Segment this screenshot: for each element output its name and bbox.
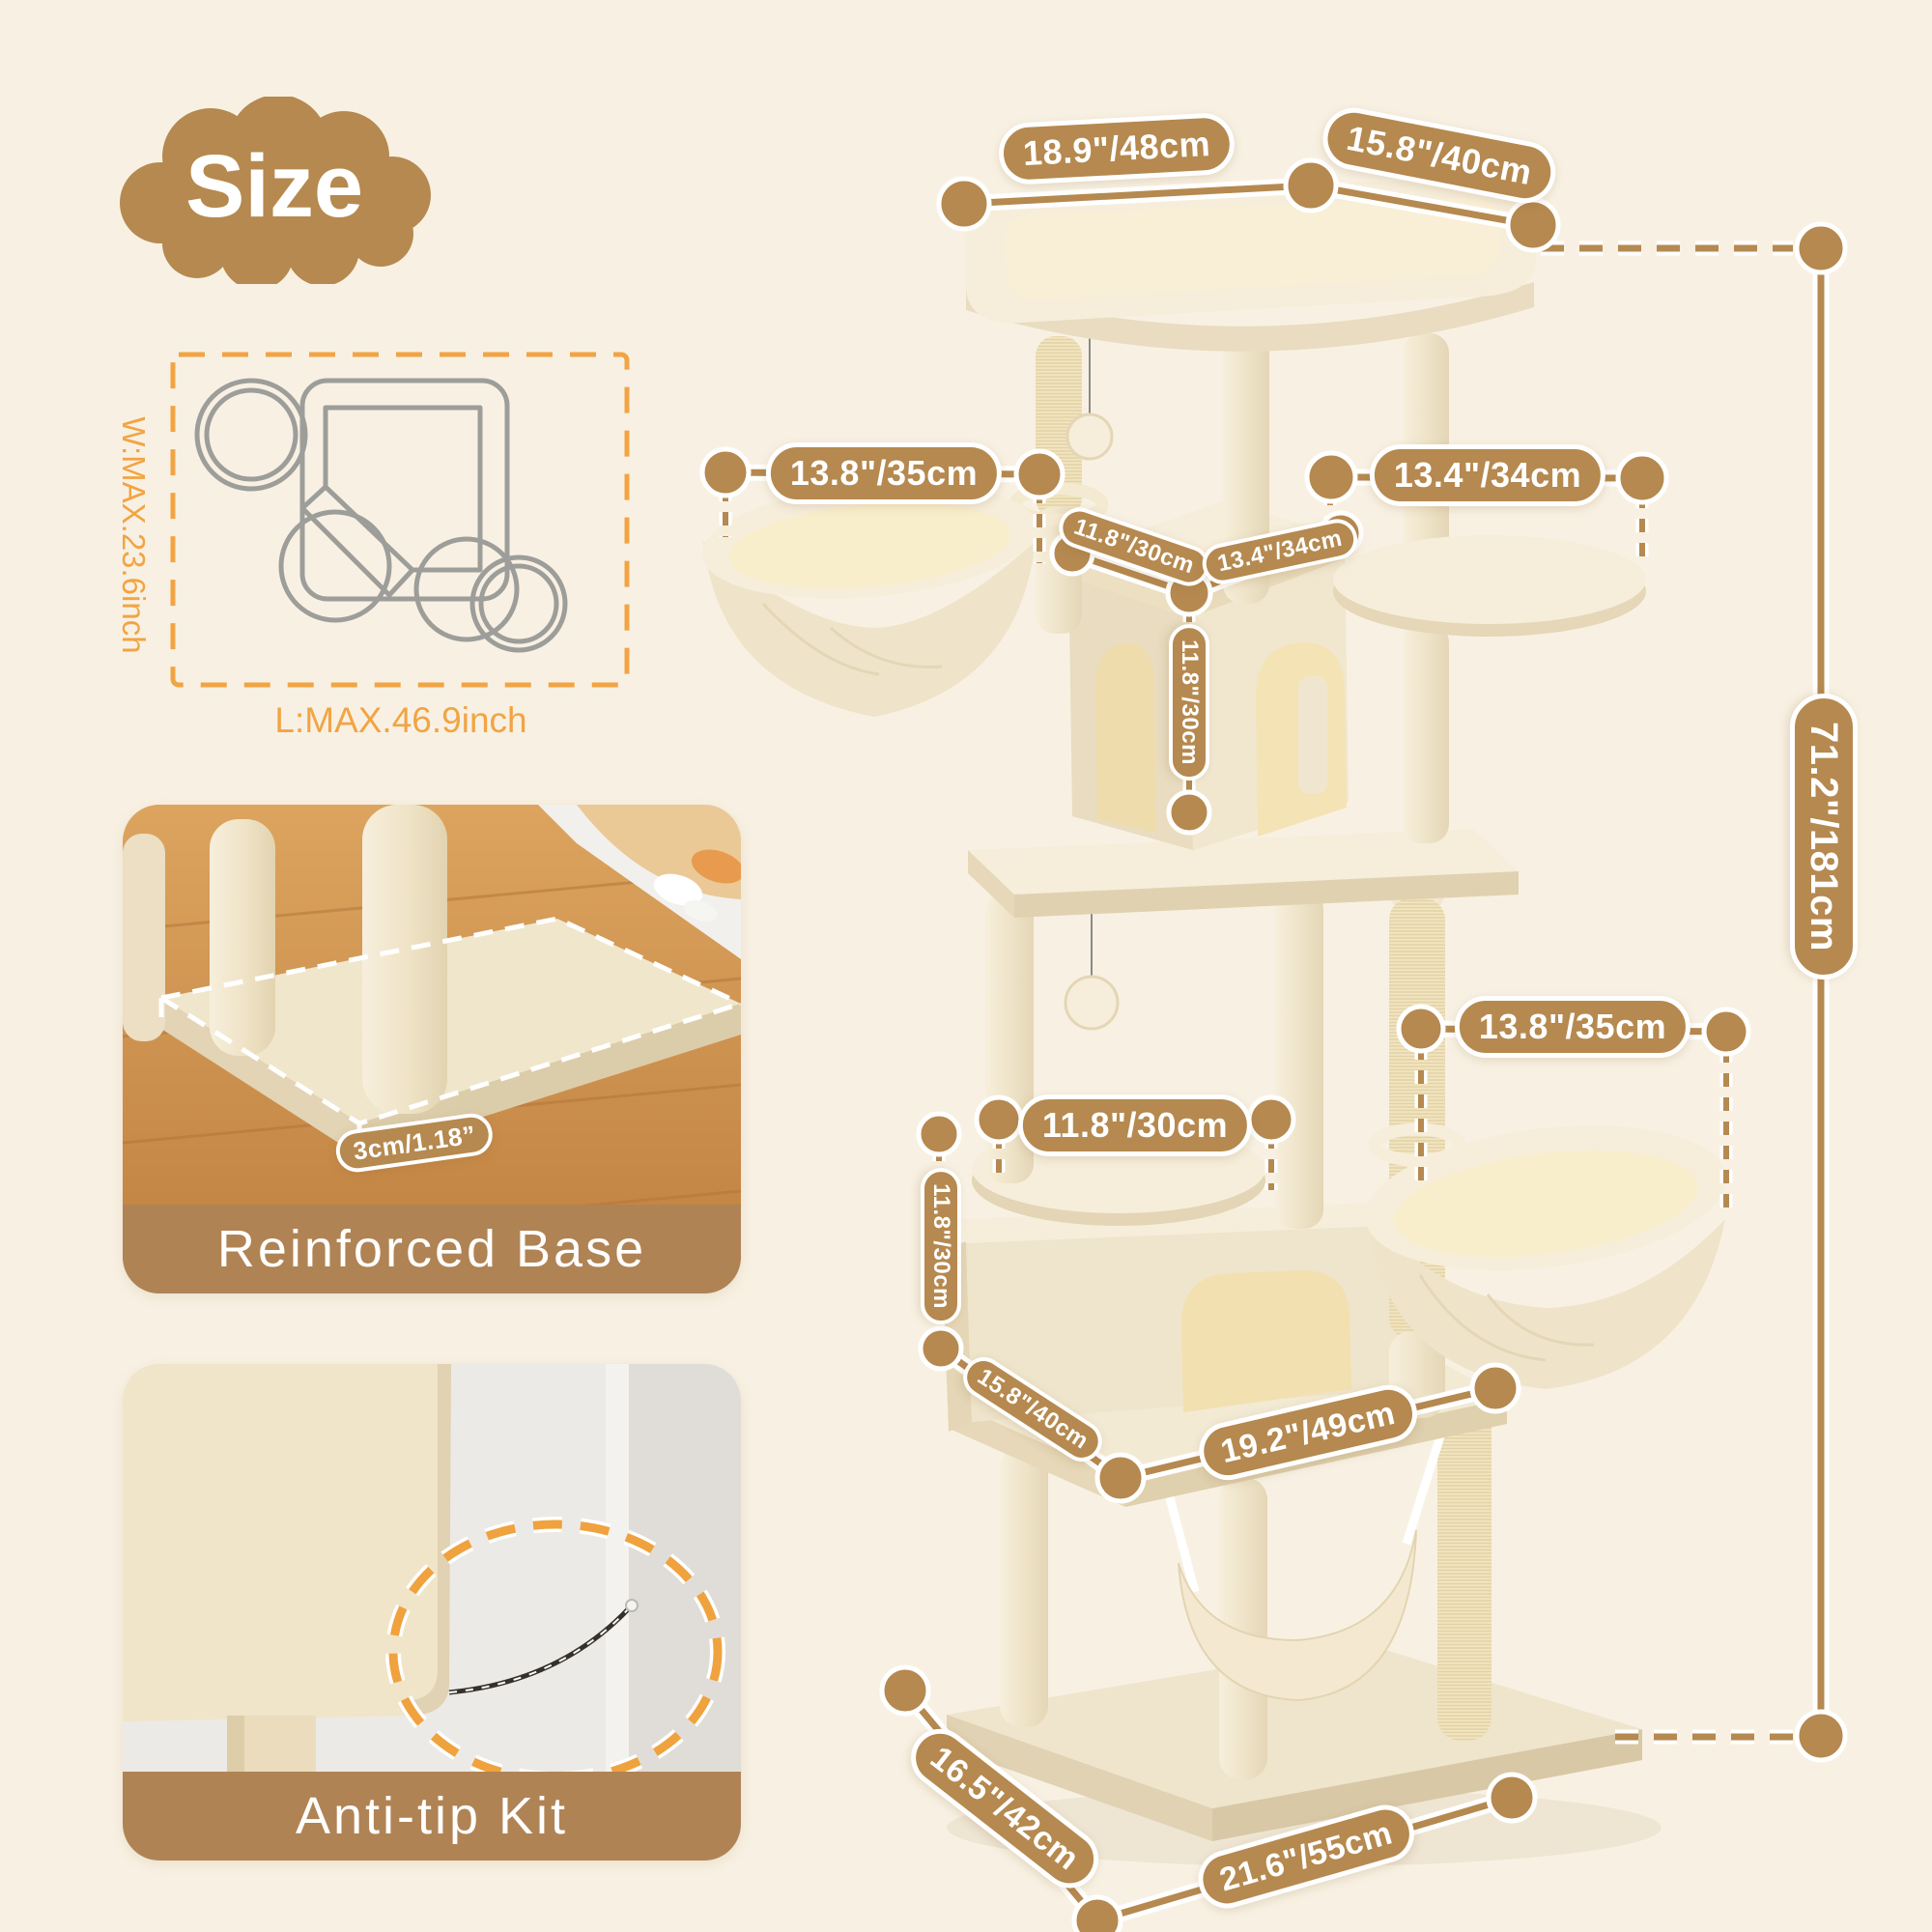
dim-upper-house-height-label: 11.8"/30cm bbox=[1169, 624, 1209, 781]
dimension-lines bbox=[0, 0, 1932, 1932]
dim-total-height-label: 71.2"/181cm bbox=[1790, 694, 1858, 980]
dim-lower-basket-label: 13.8"/35cm bbox=[1455, 996, 1690, 1058]
size-infographic: Size W:MAX.23.6inch L:MAX.46.9inch bbox=[0, 0, 1932, 1932]
dim-upper-basket-label: 13.8"/35cm bbox=[766, 442, 1002, 504]
dim-lower-house-height-label: 11.8"/30cm bbox=[921, 1168, 961, 1324]
dim-top-width-label: 18.9"/48cm bbox=[997, 112, 1236, 186]
dim-upper-platform-label: 13.4"/34cm bbox=[1370, 444, 1605, 506]
dim-mid-platform-label: 11.8"/30cm bbox=[1018, 1094, 1252, 1156]
